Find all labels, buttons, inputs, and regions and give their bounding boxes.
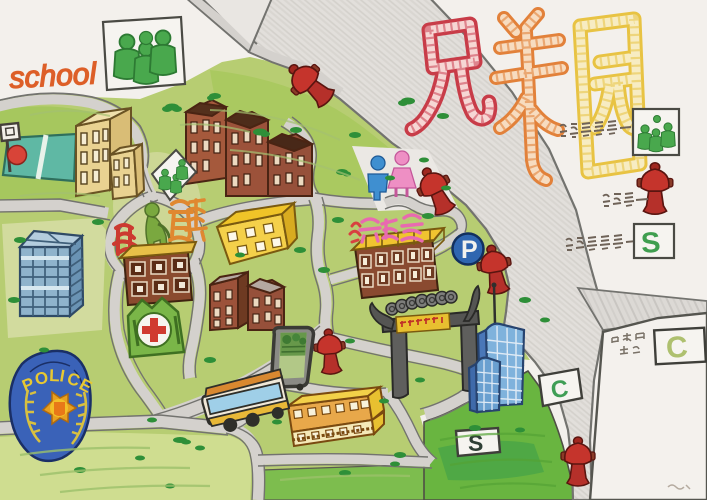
svg-text:school: school [9,57,99,95]
svg-text:P: P [461,236,478,264]
svg-text:C: C [665,331,689,365]
svg-text:S: S [640,227,662,260]
